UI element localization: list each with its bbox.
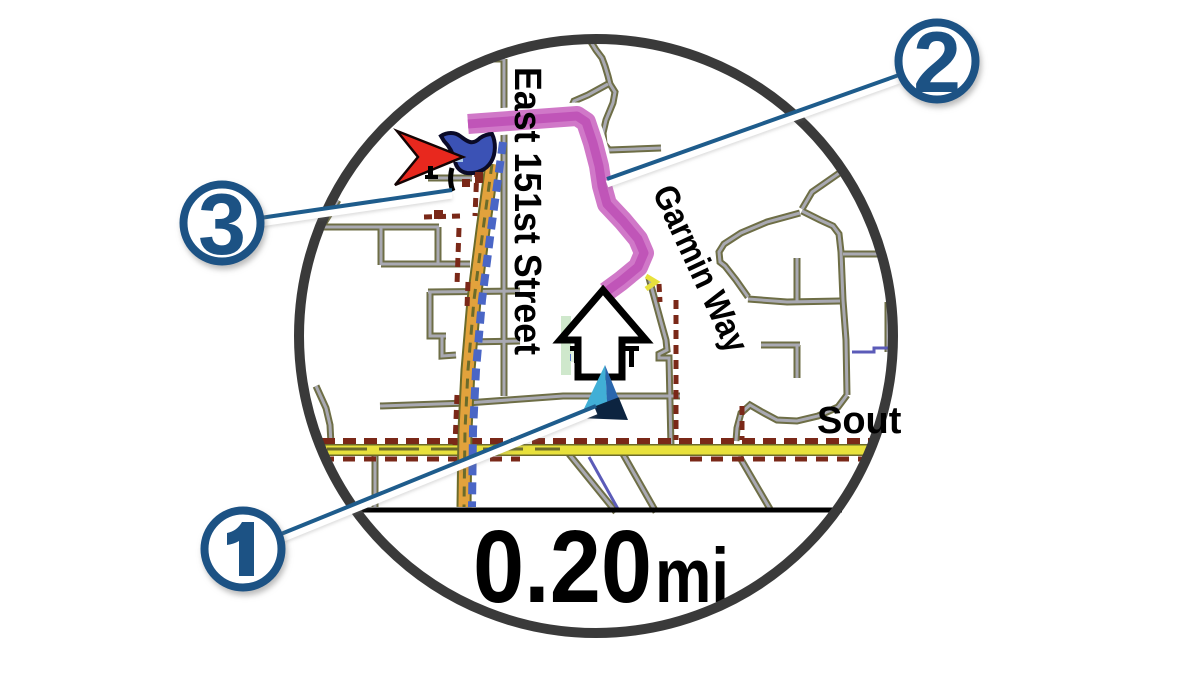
svg-text:3: 3 <box>198 177 246 273</box>
svg-text:0.20: 0.20 <box>473 509 652 624</box>
svg-text:2: 2 <box>913 15 961 111</box>
svg-text:East 151st Street: East 151st Street <box>506 67 548 355</box>
svg-text:Sout: Sout <box>817 400 902 442</box>
